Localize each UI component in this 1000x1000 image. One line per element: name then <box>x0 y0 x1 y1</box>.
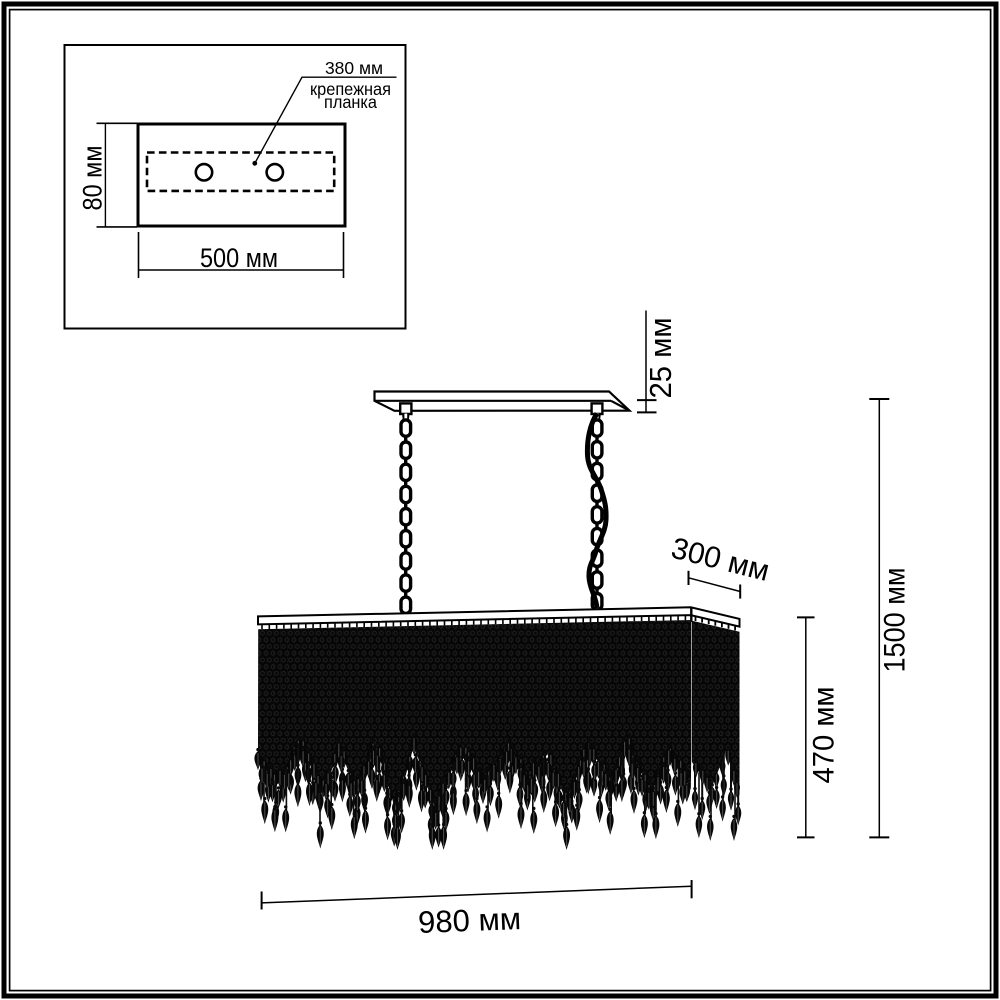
svg-text:980 мм: 980 мм <box>417 901 521 940</box>
svg-text:380 мм: 380 мм <box>325 58 383 78</box>
svg-text:планка: планка <box>324 92 377 112</box>
svg-text:1500 мм: 1500 мм <box>879 568 912 673</box>
svg-text:500 мм: 500 мм <box>200 243 278 273</box>
svg-text:25 мм: 25 мм <box>643 318 678 399</box>
svg-text:80 мм: 80 мм <box>78 146 108 211</box>
svg-text:470 мм: 470 мм <box>808 687 841 784</box>
